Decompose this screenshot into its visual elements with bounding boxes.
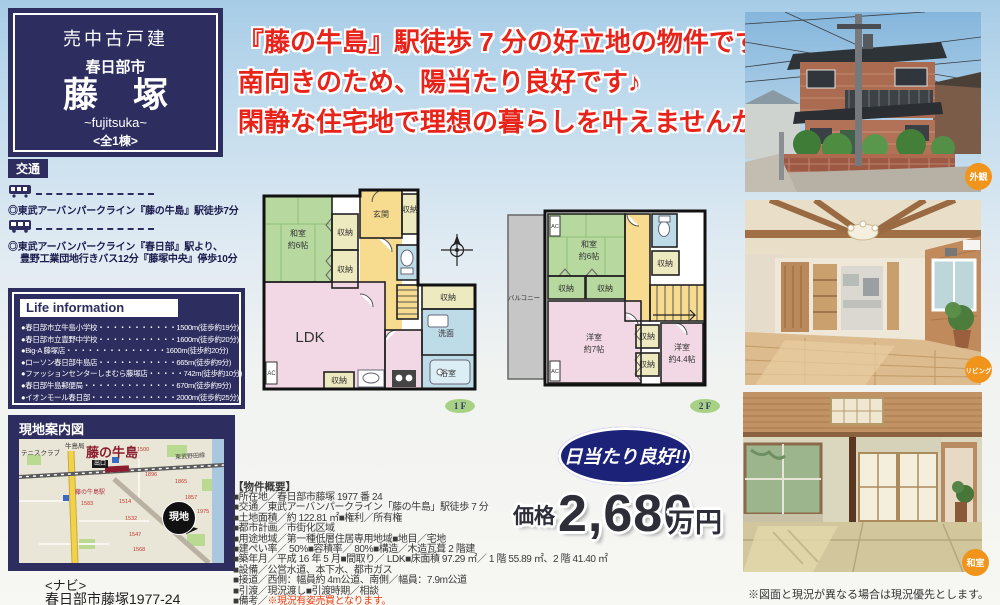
site-marker: 現地 (162, 501, 196, 535)
map-title: 現地案内図 (19, 419, 84, 438)
closet-label: 収納 (597, 283, 613, 293)
closet-label: 収納 (337, 264, 353, 274)
property-name: 藤 塚 (15, 77, 216, 115)
room-label-yokushitsu: 浴室 (440, 368, 456, 378)
bus-row (8, 219, 154, 238)
train-row (8, 184, 154, 203)
sale-category: 売中古戸建 (15, 25, 216, 51)
room-label-washitsu: 和室 (290, 228, 306, 238)
closet-label: 収納 (657, 258, 673, 268)
closet-label: 収納 (639, 331, 655, 341)
map-lot-number: 1568 (133, 547, 145, 553)
ac-unit-label: AC (267, 371, 276, 377)
title-box: 売中古戸建 春日部市 藤 塚 ~fujitsuka~ <全1棟> (8, 8, 223, 157)
sunny-badge-text: 日当たり良好!! (564, 443, 687, 469)
room-label-yoshitsu44: 洋室 (674, 342, 690, 352)
divider (36, 228, 154, 230)
closet-label: 収納 (402, 204, 418, 214)
life-information-frame: Life information ●春日部市立牛島小学校・・・・・・・・・・・1… (12, 292, 241, 405)
photo-living-illustration (745, 200, 981, 385)
photo-exterior-illustration (745, 12, 981, 192)
map-lot-number: 1500 (137, 447, 149, 453)
ac-unit-label: AC (551, 224, 559, 230)
remarks-prefix: ■備考／ (233, 596, 267, 605)
map-label-tennis: テニスクラブ (21, 447, 60, 457)
photo-label-living: リビング (965, 356, 992, 383)
balcony-label: バルコニー (508, 294, 540, 302)
navi-address: 春日部市藤塚1977-24 (45, 589, 180, 605)
room-label-yoshitsu7: 洋室 (586, 332, 602, 342)
catch-line-1: 『藤の牛島』駅徒歩 7 分の好立地の物件です♪ (238, 22, 753, 62)
closet-label: 収納 (331, 375, 347, 385)
photo-label-washitsu: 和室 (962, 549, 989, 576)
access-header: 交通 (8, 159, 48, 178)
room-label-yoshitsu7-size: 約7帖 (584, 344, 604, 354)
sunny-badge: 日当たり良好!! (558, 427, 693, 485)
closet-label: 収納 (337, 227, 353, 237)
life-information-list: ●春日部市立牛島小学校・・・・・・・・・・・1500m(徒歩約19分) ●春日部… (14, 322, 239, 403)
closet-label: 収納 (639, 359, 655, 369)
room-label-washitsu: 和室 (581, 239, 597, 249)
compass-icon (440, 233, 474, 267)
room-label-ldk: LDK (295, 329, 324, 346)
access-bus-note-2: 豊野工業団地行きバス12分『藤塚中央』停歩10分 (20, 250, 237, 265)
photo-washitsu (743, 392, 982, 572)
catch-line-3: 閑静な住宅地で理想の暮らしを叶えませんか♪ (238, 102, 753, 142)
life-item: ●春日部市立豊野中学校・・・・・・・・・・・1600m(徒歩約20分) (14, 334, 239, 346)
ac-unit-label: AC (551, 369, 559, 375)
life-item: ●イオンモール春日部・・・・・・・・・・・・2000m(徒歩約25分) (14, 392, 239, 404)
life-information-title: Life information (20, 299, 178, 317)
map-lot-number: 1975 (197, 509, 209, 515)
divider (36, 193, 154, 195)
life-item: ●ローソン春日部牛島店・・・・・・・・・・・665m(徒歩約9分) (14, 357, 239, 369)
floorplan-2f: AC AC バルコニー 和室 約6帖 収納 収納 収納 洋室 約7帖 収納 収納… (507, 207, 712, 392)
map-label-post: 牛島局 (65, 440, 85, 450)
photo-washitsu-illustration (743, 392, 982, 572)
map-station-name-small: 藤の牛島駅 (75, 487, 105, 496)
access-train-note: ◎東武アーバンパークライン『藤の牛島』駅徒歩7分 (8, 202, 239, 217)
floor-badge-1f: 1 F (445, 399, 475, 413)
map-lot-number: 1865 (175, 479, 187, 485)
property-summary: 【物件概要】 ■所在地／春日部市藤塚 1977 番 24 ■交通／東武アーバンパ… (233, 481, 733, 605)
train-icon (8, 184, 32, 198)
bus-icon (8, 219, 32, 233)
life-item: ●Big-A 藤塚店・・・・・・・・・・・・・・1600m(徒歩約20分) (14, 345, 239, 357)
room-label-washitsu-size: 約6帖 (579, 251, 599, 261)
life-item: ●ファッションセンターしまむら藤塚店・・・・・742m(徒歩約10分) (14, 368, 239, 380)
room-label-senmen: 洗面 (438, 328, 454, 338)
catch-copy: 『藤の牛島』駅徒歩 7 分の好立地の物件です♪ 南向きのため、陽当たり良好です♪… (238, 22, 753, 142)
floorplan-1f: AC 和室 約6帖 収納 収納 玄関 収納 収納 洗面 浴室 LDK 収納 (260, 184, 478, 396)
catch-line-2: 南向きのため、陽当たり良好です♪ (238, 62, 753, 102)
map-box: 現地案内図 テニスクラブ 牛島局 藤の (8, 415, 235, 571)
summary-remarks: ■備考／※現況有姿売買となります。 (233, 597, 733, 605)
map-lot-number: 1583 (81, 501, 93, 507)
floor-badge-2f: 2 F (690, 399, 720, 413)
disclaimer-note: ※図面と現況が異なる場合は現況優先とします。 (748, 586, 989, 602)
title-box-inner: 売中古戸建 春日部市 藤 塚 ~fujitsuka~ <全1棟> (13, 13, 218, 152)
map-lot-number: 1514 (119, 499, 131, 505)
photo-living (745, 200, 981, 385)
map-exit-chip: 出口 (92, 460, 108, 468)
map-station-name: 藤の牛島 (86, 442, 138, 461)
unit-count: <全1棟> (15, 132, 216, 149)
life-item: ●春日部市立牛島小学校・・・・・・・・・・・1500m(徒歩約19分) (14, 322, 239, 334)
photo-label-exterior: 外観 (965, 163, 992, 190)
property-romaji: ~fujitsuka~ (15, 115, 216, 130)
city-name: 春日部市 (15, 56, 216, 77)
room-label-washitsu-size: 約6帖 (288, 240, 308, 250)
map-lot-number: 1857 (185, 495, 197, 501)
room-label-genkan: 玄関 (373, 209, 389, 219)
closet-label: 収納 (558, 283, 574, 293)
flyer-page: 売中古戸建 春日部市 藤 塚 ~fujitsuka~ <全1棟> 『藤の牛島』駅… (0, 0, 1000, 605)
map-lot-number: 1547 (129, 532, 141, 538)
map-lot-number: 1532 (125, 516, 137, 522)
room-label-yoshitsu44-size: 約4.4帖 (668, 354, 695, 364)
map-canvas: テニスクラブ 牛島局 藤の牛島 出口 東武野田線 藤の牛島駅 1500 1583… (19, 439, 224, 563)
life-item: ●春日部牛島郵便局・・・・・・・・・・・・・670m(徒歩約9分) (14, 380, 239, 392)
photo-exterior (745, 12, 981, 192)
map-lot-number: 1896 (145, 472, 157, 478)
closet-label: 収納 (440, 292, 456, 302)
remark-1: ※現況有姿売買となります。 (267, 596, 391, 605)
life-information-box: Life information ●春日部市立牛島小学校・・・・・・・・・・・1… (8, 288, 245, 409)
